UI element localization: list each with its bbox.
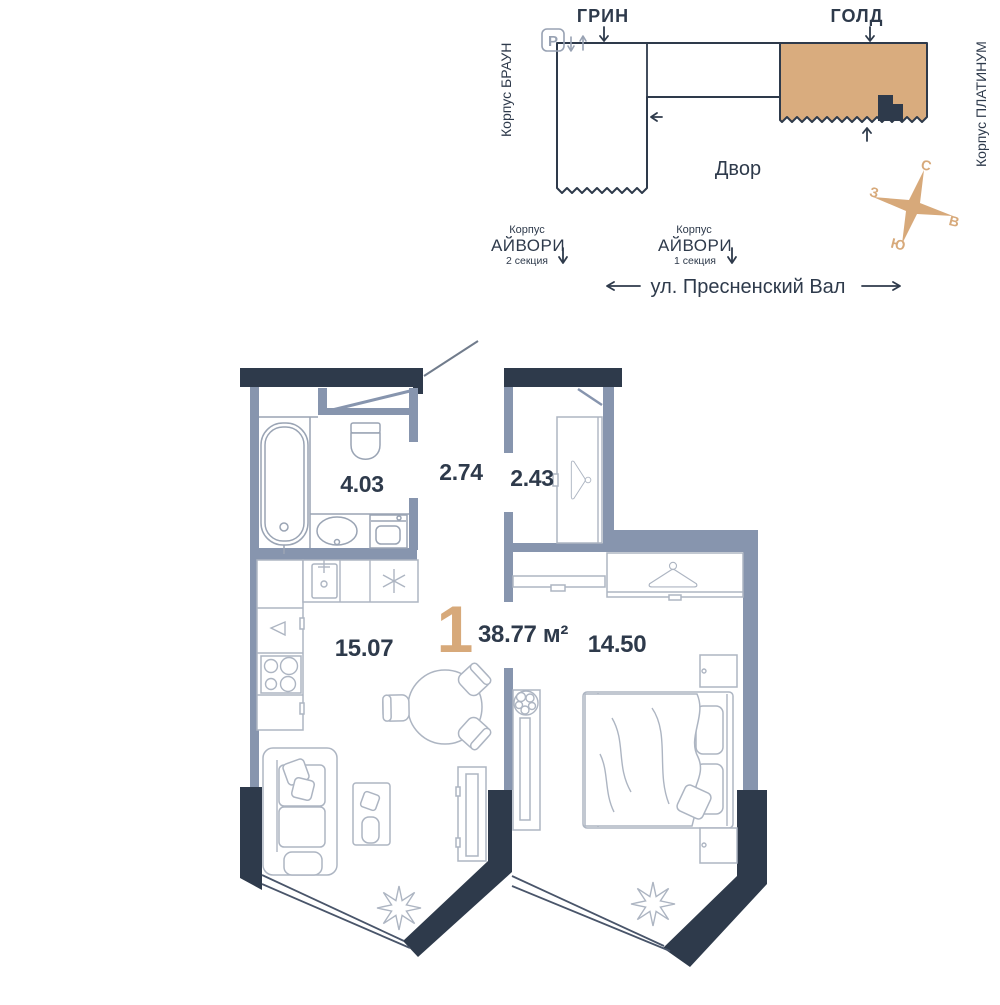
bathroom-fixtures	[261, 423, 407, 554]
console-shelf	[513, 576, 605, 591]
dining-set	[383, 662, 493, 752]
label-korpus-brown: Корпус БРАУН	[498, 43, 514, 137]
label-ivory1-korpus: Корпус	[676, 224, 712, 236]
label-courtyard: Двор	[715, 158, 761, 180]
floor-plan: 4.03 2.74 2.43 15.07 14.50 1 38.77 м²	[240, 341, 767, 967]
compass-rose: С З В Ю	[868, 156, 961, 253]
chair	[383, 695, 409, 721]
bedroom-wardrobe	[607, 553, 743, 600]
area-wardrobe: 2.43	[510, 465, 554, 491]
area-bedroom: 14.50	[588, 631, 647, 658]
label-ivory1-section: 1 секция	[674, 255, 716, 267]
entrance-arrow-icon	[651, 113, 662, 121]
sofa	[263, 748, 337, 875]
site-plan: P С З В Ю ГРИН ГОЛД Корпус БРАУН Корпус …	[491, 6, 989, 298]
area-kitchen-living: 15.07	[335, 635, 394, 662]
parking-letter: P	[548, 33, 558, 50]
ottoman	[284, 852, 322, 875]
area-hallway: 2.74	[439, 459, 483, 485]
green-arrow-icon	[600, 27, 608, 41]
compass-star	[873, 170, 953, 244]
compass-north: С	[919, 156, 933, 174]
stove	[261, 656, 301, 693]
plant-icon	[631, 882, 675, 926]
coffee-table	[353, 783, 390, 845]
closet-corner-brace	[578, 389, 602, 405]
label-ivory2-korpus: Корпус	[509, 224, 545, 236]
washing-machine	[370, 515, 407, 548]
street-arrow-right-icon	[862, 282, 900, 290]
location-leader-line	[424, 341, 478, 376]
bathroom-sink	[317, 517, 357, 545]
building-gold	[780, 43, 927, 122]
sofa-pillow	[291, 777, 315, 801]
label-green: ГРИН	[577, 6, 629, 26]
label-gold: ГОЛД	[831, 6, 884, 26]
total-area: 38.77 м²	[478, 621, 568, 648]
street-arrow-left-icon	[607, 282, 640, 290]
tv-console-bedroom	[513, 690, 540, 830]
apartment-plan-canvas: P С З В Ю ГРИН ГОЛД Корпус БРАУН Корпус …	[0, 0, 1000, 1000]
walls-dark	[240, 368, 767, 967]
bedroom-furniture	[513, 553, 743, 863]
plant-icon	[377, 886, 421, 930]
bathtub	[261, 423, 308, 554]
tv-unit-living	[456, 767, 486, 861]
marker-arrow-icon	[863, 128, 871, 141]
toilet	[351, 423, 380, 459]
label-street: ул. Пресненский Вал	[651, 276, 846, 298]
compass-south: Ю	[889, 235, 907, 254]
nightstand	[700, 828, 737, 863]
label-ivory1-name: АЙВОРИ	[658, 236, 732, 255]
area-bathroom: 4.03	[340, 471, 384, 497]
gold-arrow-icon	[866, 27, 874, 41]
nightstand	[700, 655, 737, 687]
rooms-count: 1	[437, 592, 474, 666]
label-ivory2-name: АЙВОРИ	[491, 236, 565, 255]
kitchen-sink	[312, 560, 337, 598]
label-korpus-platinum: Корпус ПЛАТИНУМ	[973, 41, 989, 167]
label-ivory2-section: 2 секция	[506, 255, 548, 267]
bed	[583, 692, 733, 828]
closet-wardrobe	[553, 417, 602, 543]
